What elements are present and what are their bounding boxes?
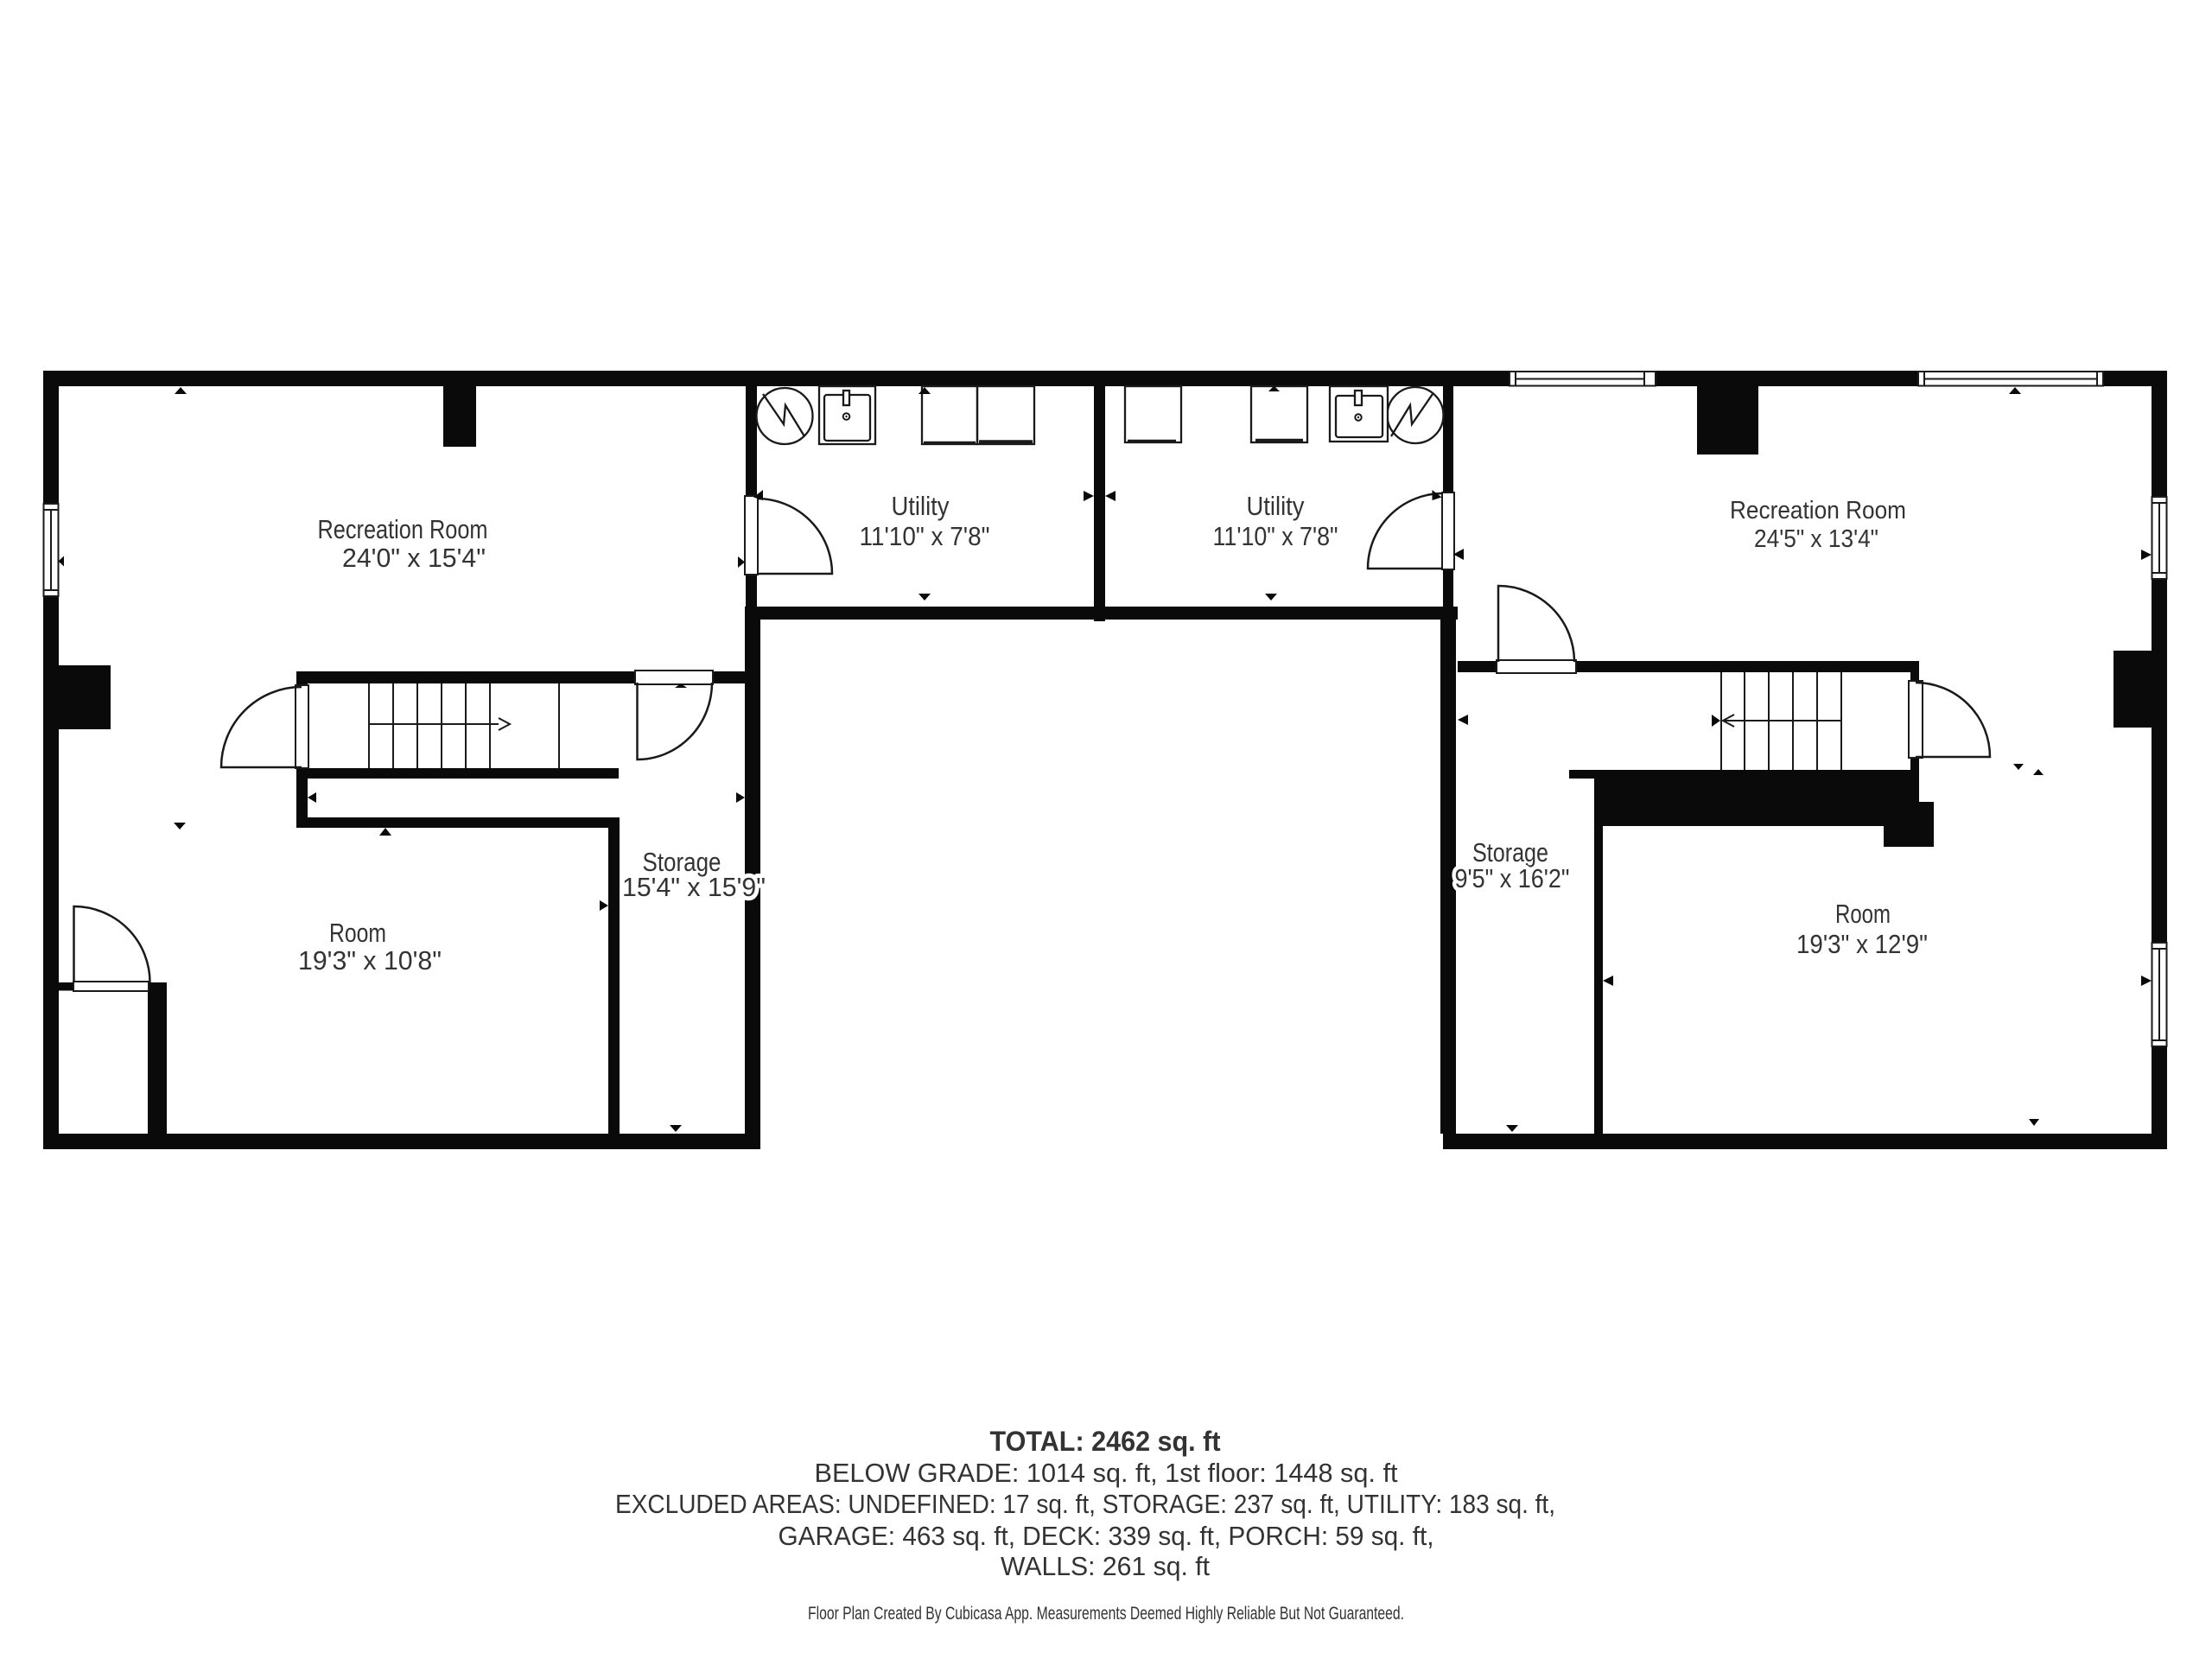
svg-text:9'5" x 16'2": 9'5" x 16'2": [1455, 863, 1570, 893]
svg-text:Utility: Utility: [892, 491, 950, 521]
svg-text:GARAGE: 463 sq. ft, DECK: 339: GARAGE: 463 sq. ft, DECK: 339 sq. ft, PO…: [779, 1521, 1434, 1551]
svg-text:BELOW GRADE: 1014 sq. ft, 1st: BELOW GRADE: 1014 sq. ft, 1st floor: 144…: [815, 1458, 1398, 1488]
svg-text:EXCLUDED AREAS: UNDEFINED: 17: EXCLUDED AREAS: UNDEFINED: 17 sq. ft, ST…: [615, 1489, 1555, 1519]
svg-text:Room: Room: [329, 918, 386, 948]
svg-text:11'10" x 7'8": 11'10" x 7'8": [1213, 521, 1338, 551]
svg-text:WALLS: 261 sq. ft: WALLS: 261 sq. ft: [1001, 1551, 1210, 1581]
svg-text:24'5" x 13'4": 24'5" x 13'4": [1754, 525, 1878, 553]
svg-text:Recreation Room: Recreation Room: [318, 514, 488, 544]
svg-text:Room: Room: [1835, 899, 1891, 929]
svg-text:Utility: Utility: [1247, 491, 1305, 521]
svg-text:TOTAL: 2462 sq. ft: TOTAL: 2462 sq. ft: [990, 1426, 1221, 1457]
svg-text:19'3" x 12'9": 19'3" x 12'9": [1796, 929, 1928, 959]
svg-text:Recreation Room: Recreation Room: [1730, 497, 1906, 524]
svg-text:19'3" x 10'8": 19'3" x 10'8": [298, 945, 442, 976]
svg-text:11'10" x 7'8": 11'10" x 7'8": [860, 521, 990, 551]
svg-text:15'4" x 15'9": 15'4" x 15'9": [622, 872, 766, 902]
svg-text:Floor Plan Created By Cubicasa: Floor Plan Created By Cubicasa App. Meas…: [808, 1604, 1404, 1624]
svg-text:24'0" x 15'4": 24'0" x 15'4": [342, 543, 486, 573]
